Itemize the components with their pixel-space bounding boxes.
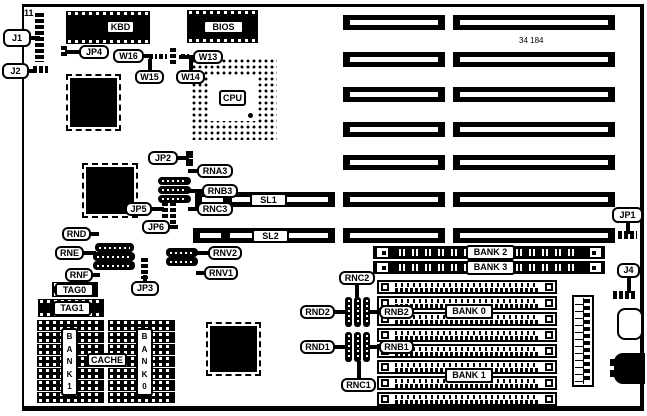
- simm-latch: [381, 395, 389, 403]
- isa-slot-contact-stripe: [350, 127, 438, 132]
- resistor-network-dots: [357, 335, 359, 359]
- callout-jp6: JP6: [142, 220, 170, 234]
- simm-contacts-bottom: [395, 336, 539, 340]
- callout-jp2: JP2: [148, 151, 178, 165]
- resistor-network-dots: [366, 335, 368, 359]
- latch-dot: [592, 251, 596, 255]
- callout-tail: [82, 251, 96, 255]
- resistor-network: [93, 261, 135, 270]
- isa-slot-contact-stripe: [350, 160, 438, 165]
- callout-rnf: RNF: [65, 268, 93, 282]
- w-center-jumper: [170, 48, 176, 66]
- simm-latch: [545, 315, 553, 323]
- latch-dot: [382, 266, 386, 270]
- simm-contacts-bottom: [395, 320, 539, 324]
- callout-jp5: JP5: [125, 202, 152, 216]
- callout-rne: RNE: [55, 246, 84, 260]
- callout-tail: [333, 310, 348, 314]
- resistor-network-dots: [97, 265, 131, 267]
- label-bios: BIOS: [203, 20, 244, 34]
- isa-slot-contact-stripe: [460, 160, 608, 165]
- resistor-network: [354, 332, 361, 362]
- simm-latch: [590, 263, 601, 272]
- isa-slot: [453, 155, 615, 170]
- callout-rnc3: RNC3: [197, 202, 233, 216]
- callout-w14: W14: [176, 70, 205, 84]
- simm-latch: [381, 331, 389, 339]
- isa-slot-contact-stripe: [460, 233, 608, 238]
- callout-jp4: JP4: [79, 45, 109, 59]
- isa-slot-contact-stripe: [350, 57, 438, 62]
- dip-pins-bottom: [39, 399, 102, 402]
- din-tab: [610, 359, 615, 366]
- isa-slot-contact-stripe: [350, 92, 438, 97]
- label-bank-vertical: B A N K 0: [136, 328, 153, 396]
- resistor-network: [158, 186, 191, 194]
- din-keyboard-connector: [614, 353, 645, 384]
- simm-latch: [545, 283, 553, 291]
- qfp-chip: [67, 75, 120, 130]
- simm-contacts-top: [395, 363, 539, 367]
- simm-latch: [590, 248, 601, 257]
- callout-jp1: JP1: [612, 207, 643, 223]
- simm-contacts-top: [395, 395, 539, 399]
- dip-pins-top: [189, 11, 256, 14]
- label-kbd: KBD: [106, 20, 135, 34]
- simm-latch: [381, 283, 389, 291]
- isa-slot: [453, 228, 615, 243]
- callout-w13: W13: [193, 50, 223, 64]
- callout-j1: J1: [3, 29, 31, 47]
- label-sl1: SL1: [250, 193, 287, 207]
- callout-rnc1: RNC1: [341, 378, 376, 392]
- isa-slot-contact-stripe: [460, 92, 608, 97]
- j4-jumper: [613, 291, 637, 299]
- simm-latch: [377, 248, 388, 257]
- dip-pins-top: [68, 12, 148, 15]
- isa-slot-contact-stripe: [350, 197, 438, 202]
- latch-dot: [382, 251, 386, 255]
- simm-slot-30pin: [377, 280, 557, 294]
- dip-pins-top: [39, 321, 102, 324]
- simm-latch: [381, 379, 389, 387]
- callout-rna3: RNA3: [197, 164, 233, 178]
- simm-contacts-top: [395, 283, 539, 287]
- simm-contacts-bottom: [395, 352, 539, 356]
- callout-rnb3: RNB3: [202, 184, 238, 198]
- simm-latch: [377, 263, 388, 272]
- isa-slot: [343, 15, 445, 30]
- isa-slot-contact-stripe: [460, 20, 608, 25]
- isa-slot-contact-stripe: [460, 127, 608, 132]
- latch-dot: [592, 266, 596, 270]
- simm-latch: [545, 331, 553, 339]
- simm-contacts-top: [395, 299, 539, 303]
- callout-w16: W16: [113, 49, 144, 63]
- resistor-network-dots: [162, 180, 187, 182]
- pin-ticks: [584, 299, 590, 383]
- label-bank-vertical: B A N K 1: [61, 328, 78, 396]
- resistor-network: [95, 243, 134, 252]
- battery-outline: [617, 308, 643, 340]
- isa-slot-contact-stripe: [460, 57, 608, 62]
- label-sl2: SL2: [252, 229, 289, 243]
- callout-tail: [333, 345, 348, 349]
- dip-pins-bottom: [110, 399, 173, 402]
- isa-slot: [343, 122, 445, 137]
- isa-slot: [343, 228, 445, 243]
- resistor-network-dots: [366, 300, 368, 324]
- resistor-network-dots: [357, 300, 359, 324]
- resistor-network-dots: [170, 261, 194, 263]
- text-34-184: 34 184: [519, 36, 543, 45]
- label-tag0: TAG0: [55, 283, 94, 297]
- isa-slot-contact-stripe: [350, 20, 438, 25]
- resistor-network: [166, 257, 198, 266]
- simm-latch: [545, 395, 553, 403]
- isa-slot: [343, 52, 445, 67]
- din-tab: [610, 370, 615, 377]
- simm-latch: [545, 363, 553, 371]
- resistor-network: [93, 252, 135, 261]
- simm-latch: [545, 299, 553, 307]
- resistor-network-dots: [170, 252, 194, 254]
- label-bank-2: BANK 2: [466, 245, 515, 260]
- callout-rnv2: RNV2: [208, 246, 242, 260]
- isa-slot: [453, 122, 615, 137]
- isa-slot: [453, 52, 615, 67]
- callout-rnd2: RND2: [300, 305, 335, 319]
- label-cache: CACHE: [87, 353, 127, 367]
- pin-column: [575, 298, 584, 384]
- isa-slot: [453, 87, 615, 102]
- dip-pins-bottom: [68, 40, 148, 43]
- w15-jumper: [159, 54, 167, 59]
- qfp-chip: [207, 323, 260, 375]
- callout-tail: [627, 276, 631, 293]
- callout-tail: [355, 283, 359, 300]
- motherboard-diagram: KBDBIOSCPUSL1SL2TAG0TAG1CACHEBANK 2BANK …: [0, 0, 647, 416]
- isa-slot: [343, 155, 445, 170]
- callout-j4: J4: [617, 263, 640, 278]
- vlb-slot-key: [221, 233, 230, 238]
- resistor-network: [354, 297, 361, 327]
- simm-contacts-top: [395, 331, 539, 335]
- callout-rnv1: RNV1: [204, 266, 238, 280]
- simm-contacts-bottom: [395, 384, 539, 388]
- callout-tail: [150, 207, 164, 211]
- resistor-network: [158, 177, 191, 185]
- isa-slot-contact-stripe: [460, 197, 608, 202]
- power-header: [572, 295, 594, 387]
- label-bank-3: BANK 3: [466, 260, 515, 275]
- resistor-network-dots: [162, 189, 187, 191]
- isa-slot: [343, 87, 445, 102]
- simm-latch: [545, 379, 553, 387]
- callout-rnd: RND: [62, 227, 91, 241]
- callout-rnb1: RNB1: [379, 340, 414, 354]
- resistor-network-dots: [162, 198, 187, 200]
- label-tag1: TAG1: [53, 301, 91, 316]
- jp2-jumper-b: [186, 159, 193, 166]
- dip-pins-bottom: [189, 39, 256, 42]
- simm-contacts-top: [395, 347, 539, 351]
- simm-latch: [545, 347, 553, 355]
- label-bank-0: BANK 0: [445, 304, 493, 319]
- callout-rnd1: RND1: [300, 340, 335, 354]
- label-bank-1: BANK 1: [445, 368, 493, 383]
- text-11: 11: [24, 8, 34, 18]
- resistor-network-dots: [99, 247, 130, 249]
- isa-slot: [343, 192, 445, 207]
- callout-j2: J2: [2, 63, 29, 79]
- dip-pins-top: [110, 321, 173, 324]
- isa-slot-contact-stripe: [350, 233, 438, 238]
- resistor-network: [166, 248, 198, 257]
- simm-contacts-bottom: [395, 400, 539, 404]
- callout-rnc2: RNC2: [339, 271, 375, 285]
- resistor-network-dots: [97, 256, 131, 258]
- simm-latch: [381, 363, 389, 371]
- cpu-pin1-dot: [248, 113, 253, 118]
- simm-contacts-bottom: [395, 288, 539, 292]
- callout-rnb2: RNB2: [379, 305, 414, 319]
- callout-jp3: JP3: [131, 281, 159, 296]
- isa-slot: [453, 15, 615, 30]
- callout-w15: W15: [135, 70, 164, 84]
- isa-slot: [453, 192, 615, 207]
- simm-slot-30pin: [377, 392, 557, 406]
- label-cpu: CPU: [219, 90, 246, 106]
